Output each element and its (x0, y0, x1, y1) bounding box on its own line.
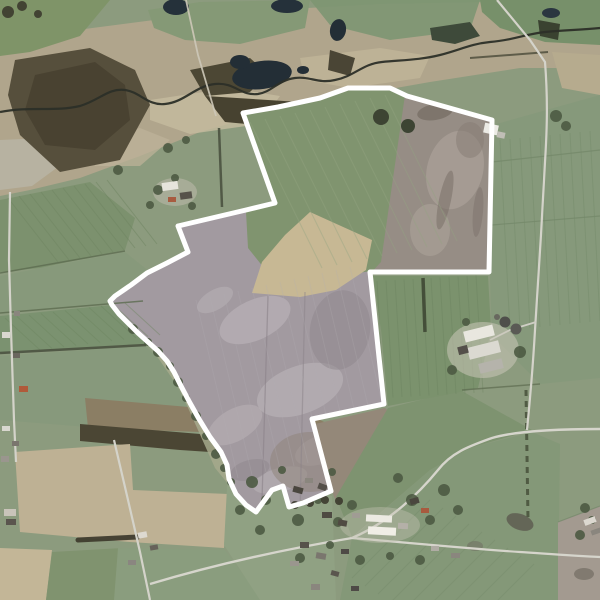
aerial-map-view[interactable] (0, 0, 600, 600)
building (12, 441, 19, 446)
building (2, 332, 10, 338)
field-tan-corner (0, 548, 52, 600)
building (19, 386, 28, 392)
building (6, 519, 16, 525)
silo (511, 324, 522, 335)
building (2, 426, 10, 431)
pond (297, 66, 309, 74)
building (352, 513, 360, 518)
building (351, 586, 359, 591)
building (13, 353, 20, 358)
building (421, 508, 429, 513)
building (398, 523, 408, 530)
building (305, 478, 313, 483)
building (366, 514, 392, 522)
building (1, 456, 9, 462)
terrain-feature (456, 122, 484, 158)
building (311, 584, 320, 590)
pond (230, 55, 250, 69)
building (4, 509, 16, 516)
building (451, 553, 460, 558)
field-green-bottom (46, 548, 122, 600)
hedgerow (423, 278, 425, 332)
building (14, 311, 20, 316)
building (290, 561, 299, 566)
building (168, 197, 176, 202)
soil-smudge (574, 568, 594, 580)
tree-clump (401, 119, 415, 133)
building (368, 526, 396, 535)
tree-clump (373, 109, 389, 125)
silo (500, 317, 511, 328)
pond (542, 8, 560, 18)
building (128, 560, 136, 565)
building (300, 542, 309, 548)
building (322, 512, 332, 518)
silo (494, 314, 500, 320)
tree-row (78, 537, 138, 540)
building (341, 549, 349, 554)
building (431, 546, 439, 551)
aerial-photo-canvas (0, 0, 600, 600)
